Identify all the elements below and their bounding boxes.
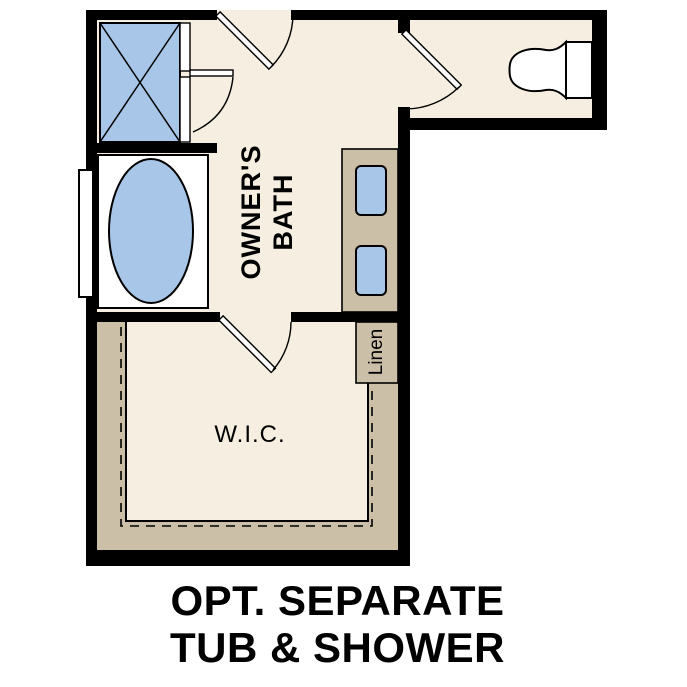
wall-segment xyxy=(398,107,410,566)
toilet-icon xyxy=(510,42,593,98)
shower-glass-panel xyxy=(180,23,190,71)
wall-segment xyxy=(86,550,410,566)
wall-segment xyxy=(88,143,217,153)
caption-line1: OPT. SEPARATE xyxy=(0,577,681,624)
tub-basin xyxy=(109,159,193,303)
owners-bath-label-line2: BATH xyxy=(267,127,299,297)
caption-line2: TUB & SHOWER xyxy=(0,624,681,671)
floor-plan: OWNER'S BATH W.I.C. Linen OPT. SEPARATE … xyxy=(0,0,687,687)
wall-segment xyxy=(398,118,607,130)
toilet-door-opening xyxy=(398,33,410,107)
linen-label: Linen xyxy=(367,320,387,384)
wic-door-opening xyxy=(220,312,291,322)
sink-icon xyxy=(356,166,386,215)
shower-door-leaf xyxy=(190,70,233,76)
wall-segment xyxy=(291,312,410,322)
entry-opening xyxy=(217,10,291,20)
window-icon xyxy=(79,170,93,297)
wall-segment xyxy=(291,10,607,20)
wall-segment xyxy=(86,10,217,20)
owners-bath-label-line1: OWNER'S xyxy=(235,127,267,297)
plan-caption: OPT. SEPARATE TUB & SHOWER xyxy=(0,577,681,671)
wic-label: W.I.C. xyxy=(190,422,310,448)
sink-icon xyxy=(356,246,386,295)
wall-segment xyxy=(86,312,220,322)
toilet-tank xyxy=(566,42,592,98)
wall-segment xyxy=(592,10,607,130)
shower-glass-panel xyxy=(180,77,190,142)
bathtub-icon xyxy=(79,155,208,308)
vanity xyxy=(342,149,398,312)
owners-bath-label: OWNER'S BATH xyxy=(235,127,301,297)
